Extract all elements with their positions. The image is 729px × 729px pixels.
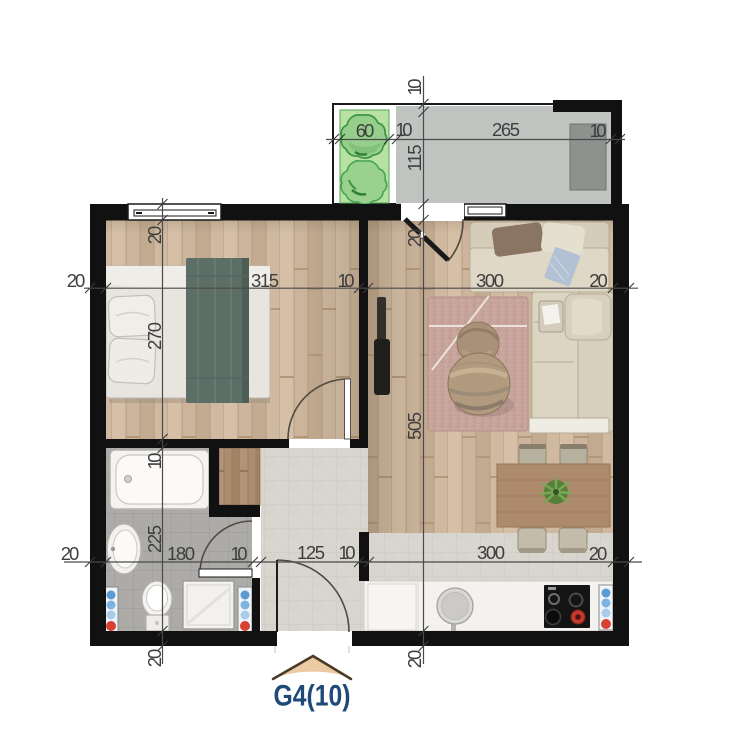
svg-text:20: 20 <box>589 543 608 564</box>
svg-text:115: 115 <box>404 145 425 172</box>
svg-text:300: 300 <box>476 270 504 291</box>
svg-text:180: 180 <box>167 543 195 564</box>
svg-text:300: 300 <box>477 542 505 563</box>
svg-text:10: 10 <box>404 79 425 96</box>
svg-text:270: 270 <box>144 322 165 350</box>
svg-text:225: 225 <box>144 525 165 553</box>
svg-text:125: 125 <box>297 542 325 563</box>
svg-text:20: 20 <box>144 226 165 245</box>
svg-text:20: 20 <box>404 229 425 248</box>
svg-text:505: 505 <box>404 412 425 440</box>
svg-text:315: 315 <box>251 270 279 291</box>
svg-text:10: 10 <box>339 542 356 563</box>
svg-text:20: 20 <box>589 270 608 291</box>
svg-text:20: 20 <box>67 270 86 291</box>
svg-text:10: 10 <box>590 120 607 141</box>
svg-text:10: 10 <box>231 543 248 564</box>
svg-text:10: 10 <box>338 270 355 291</box>
svg-text:265: 265 <box>492 119 520 140</box>
svg-text:10: 10 <box>144 453 165 470</box>
svg-text:20: 20 <box>61 543 80 564</box>
svg-text:10: 10 <box>396 119 413 140</box>
svg-text:20: 20 <box>404 650 425 669</box>
svg-text:G4(10): G4(10) <box>274 680 351 713</box>
svg-text:20: 20 <box>144 649 165 668</box>
svg-text:60: 60 <box>356 120 375 141</box>
